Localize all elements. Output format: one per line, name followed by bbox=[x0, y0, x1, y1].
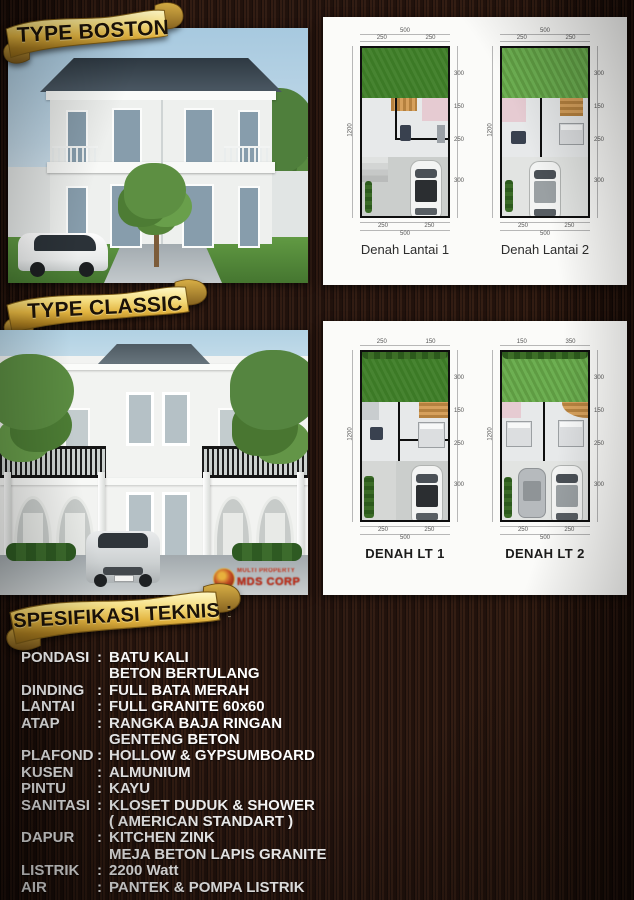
car-rear-window bbox=[415, 208, 437, 215]
spec-row: LISTRIK:2200 Watt bbox=[21, 863, 628, 879]
dim-label: 500 bbox=[540, 231, 550, 237]
floorplan-caption: DENAH LT 2 bbox=[487, 546, 603, 561]
dim-label: 250 bbox=[594, 137, 604, 143]
floorplan-denah-lt-1: 250 150 1200 300 150 250 300 250 250 500 bbox=[347, 334, 463, 561]
dim-line bbox=[500, 345, 590, 346]
car-windshield bbox=[416, 474, 438, 483]
dim-label: 500 bbox=[400, 535, 410, 541]
carport-area bbox=[362, 157, 448, 216]
dim-label: 300 bbox=[454, 178, 464, 184]
dim-label: 250 bbox=[378, 223, 388, 229]
dim-label: 300 bbox=[594, 482, 604, 488]
spec-value: ( AMERICAN STANDART ) bbox=[109, 814, 628, 830]
floorplan-caption: DENAH LT 1 bbox=[347, 546, 463, 561]
spec-value: MEJA BETON LAPIS GRANITE bbox=[109, 847, 628, 863]
car-top-view bbox=[530, 162, 560, 218]
car-roof bbox=[523, 481, 541, 501]
car-rear-window bbox=[556, 513, 578, 520]
cabinet bbox=[437, 125, 446, 143]
rooms-area bbox=[502, 402, 588, 461]
floorplan-canvas: 500 250 250 1200 300 150 250 300 250 250… bbox=[487, 30, 603, 236]
hedge bbox=[232, 543, 302, 561]
bed bbox=[559, 123, 583, 145]
spec-colon: : bbox=[97, 830, 109, 846]
spec-row: GENTENG BETON bbox=[21, 732, 628, 748]
dim-label: 250 bbox=[426, 35, 436, 41]
dim-line bbox=[360, 526, 450, 527]
dim-line bbox=[500, 526, 590, 527]
dim-label: 1200 bbox=[348, 427, 354, 440]
spec-label: LISTRIK bbox=[21, 863, 97, 879]
dim-label: 300 bbox=[454, 375, 464, 381]
dim-label: 250 bbox=[454, 137, 464, 143]
spec-value: FULL BATA MERAH bbox=[109, 683, 628, 699]
spec-colon bbox=[97, 732, 109, 748]
stairs bbox=[560, 98, 582, 116]
sofa bbox=[370, 427, 384, 440]
rooms-area bbox=[362, 402, 448, 461]
floorplan-plot bbox=[360, 46, 450, 218]
spec-label bbox=[21, 814, 97, 830]
car-roof bbox=[534, 181, 556, 203]
spec-colon: : bbox=[97, 798, 109, 814]
carport-area bbox=[362, 461, 448, 520]
dim-label: 250 bbox=[518, 527, 528, 533]
interior-wall bbox=[398, 402, 400, 461]
spec-value: KITCHEN ZINK bbox=[109, 830, 628, 846]
rooms-area bbox=[502, 98, 588, 157]
car-windshield bbox=[534, 170, 556, 179]
dim-label: 500 bbox=[400, 28, 410, 34]
dim-label: 250 bbox=[566, 35, 576, 41]
bed bbox=[418, 422, 446, 448]
technical-specifications: PONDASI:BATU KALI BETON BERTULANG DINDIN… bbox=[21, 650, 628, 896]
dim-label: 300 bbox=[454, 71, 464, 77]
tree-crown bbox=[0, 354, 74, 430]
planter bbox=[365, 181, 373, 213]
dim-label: 500 bbox=[400, 231, 410, 237]
spec-value: PANTEK & POMPA LISTRIK bbox=[109, 880, 628, 896]
car-roof bbox=[416, 485, 438, 507]
spec-row: SANITASI:KLOSET DUDUK & SHOWER bbox=[21, 798, 628, 814]
hedge bbox=[6, 543, 76, 561]
spec-label: ATAP bbox=[21, 716, 97, 732]
tree-left bbox=[0, 354, 84, 484]
bed bbox=[558, 420, 584, 447]
bathroom bbox=[502, 98, 526, 122]
dim-label: 300 bbox=[594, 178, 604, 184]
dim-label: 1200 bbox=[488, 123, 494, 136]
car-wheel bbox=[79, 262, 94, 277]
dim-label: 250 bbox=[377, 35, 387, 41]
tree-crown bbox=[124, 163, 186, 219]
sedan-car bbox=[86, 521, 160, 587]
dim-line bbox=[360, 41, 450, 42]
spec-label: SANITASI bbox=[21, 798, 97, 814]
interior-wall bbox=[540, 98, 542, 157]
car-rear-window bbox=[534, 209, 556, 216]
spec-label: DINDING bbox=[21, 683, 97, 699]
spec-colon: : bbox=[97, 781, 109, 797]
car-windshield bbox=[98, 533, 148, 548]
spec-label bbox=[21, 847, 97, 863]
watermark-line2: MDS CORP bbox=[237, 576, 300, 588]
dim-label: 350 bbox=[566, 339, 576, 345]
dim-label: 250 bbox=[424, 527, 434, 533]
lower-door bbox=[238, 186, 260, 248]
dim-label: 300 bbox=[594, 71, 604, 77]
upper-window bbox=[184, 108, 214, 164]
spec-value: FULL GRANITE 60x60 bbox=[109, 699, 628, 715]
dim-label: 300 bbox=[454, 482, 464, 488]
dim-label: 150 bbox=[454, 408, 464, 414]
garden-area bbox=[362, 352, 448, 402]
dim-label: 250 bbox=[424, 223, 434, 229]
suv-car bbox=[18, 225, 108, 277]
floorplan-caption: Denah Lantai 1 bbox=[347, 242, 463, 257]
spec-colon bbox=[97, 666, 109, 682]
dim-line bbox=[360, 34, 450, 35]
kitchen bbox=[362, 402, 379, 420]
car-top-view bbox=[552, 466, 582, 522]
spec-label: AIR bbox=[21, 880, 97, 896]
dim-label: 1200 bbox=[488, 427, 494, 440]
floorplan-plot bbox=[360, 350, 450, 522]
stair-steps bbox=[362, 157, 388, 182]
dim-label: 300 bbox=[594, 375, 604, 381]
spec-row: DAPUR:KITCHEN ZINK bbox=[21, 830, 628, 846]
fence-wall-right bbox=[268, 171, 308, 237]
dim-label: 500 bbox=[540, 535, 550, 541]
spec-row: KUSEN:ALMUNIUM bbox=[21, 765, 628, 781]
garden-area bbox=[502, 48, 588, 98]
car-roof bbox=[556, 485, 578, 507]
dim-label: 150 bbox=[594, 104, 604, 110]
floorplan-canvas: 150 350 1200 300 150 250 300 250 250 500 bbox=[487, 334, 603, 540]
car-windows bbox=[34, 235, 96, 251]
license-plate bbox=[114, 575, 134, 582]
dim-label: 250 bbox=[454, 441, 464, 447]
interior-wall bbox=[543, 402, 545, 461]
stairs bbox=[562, 402, 588, 417]
spec-colon: : bbox=[97, 748, 109, 764]
boston-floorplans-panel: 500 250 250 1200 300 150 250 300 250 250… bbox=[323, 17, 627, 285]
bathroom bbox=[422, 98, 448, 120]
dim-label: 150 bbox=[517, 339, 527, 345]
floorplan-plot bbox=[500, 350, 590, 522]
floorplan-denah-lantai-1: 500 250 250 1200 300 150 250 300 250 250… bbox=[347, 30, 463, 257]
dim-label: 250 bbox=[594, 441, 604, 447]
spec-label bbox=[21, 666, 97, 682]
spec-row: BETON BERTULANG bbox=[21, 666, 628, 682]
dim-line bbox=[500, 222, 590, 223]
dim-label: 150 bbox=[454, 104, 464, 110]
car-grille bbox=[103, 567, 143, 575]
spec-colon bbox=[97, 814, 109, 830]
spec-row: MEJA BETON LAPIS GRANITE bbox=[21, 847, 628, 863]
dim-label: 500 bbox=[540, 28, 550, 34]
spec-row: PINTU:KAYU bbox=[21, 781, 628, 797]
spec-row: PLAFOND:HOLLOW & GYPSUMBOARD bbox=[21, 748, 628, 764]
dim-line bbox=[500, 41, 590, 42]
car-wheel bbox=[30, 262, 45, 277]
garden-area bbox=[362, 48, 448, 98]
dim-label: 150 bbox=[594, 408, 604, 414]
tree-center bbox=[116, 163, 196, 267]
spec-colon: : bbox=[97, 716, 109, 732]
center-lower-door bbox=[162, 492, 190, 560]
brochure-page: TYPE BOSTON 500 250 250 1200 300 150 250… bbox=[0, 0, 634, 900]
spec-colon: : bbox=[97, 863, 109, 879]
sofa bbox=[400, 125, 411, 140]
spec-label bbox=[21, 732, 97, 748]
dim-line bbox=[500, 34, 590, 35]
floorplan-canvas: 250 150 1200 300 150 250 300 250 250 500 bbox=[347, 334, 463, 540]
watermark-line1: MULTI PROPERTY bbox=[237, 568, 295, 574]
planter bbox=[364, 476, 374, 518]
stairs bbox=[419, 402, 448, 417]
car-roof bbox=[415, 180, 437, 202]
roof-cornice bbox=[46, 91, 276, 100]
floorplan-plot bbox=[500, 46, 590, 218]
dim-label: 150 bbox=[426, 339, 436, 345]
dim-label: 250 bbox=[517, 35, 527, 41]
spec-label: DAPUR bbox=[21, 830, 97, 846]
boston-house-photo bbox=[8, 28, 308, 283]
upper-window bbox=[112, 108, 142, 164]
planter bbox=[505, 180, 513, 212]
floorplan-denah-lt-2: 150 350 1200 300 150 250 300 250 250 500 bbox=[487, 334, 603, 561]
spec-row: LANTAI:FULL GRANITE 60x60 bbox=[21, 699, 628, 715]
spec-value: BETON BERTULANG bbox=[109, 666, 628, 682]
car-below-top-view bbox=[519, 469, 545, 517]
bathroom bbox=[502, 402, 521, 417]
rooms-area bbox=[362, 98, 448, 157]
spec-value: HOLLOW & GYPSUMBOARD bbox=[109, 748, 628, 764]
spec-row: ATAP:RANGKA BAJA RINGAN bbox=[21, 716, 628, 732]
spec-label: PONDASI bbox=[21, 650, 97, 666]
tree-crown bbox=[230, 350, 308, 430]
dim-label: 250 bbox=[377, 339, 387, 345]
spec-value: KAYU bbox=[109, 781, 628, 797]
dim-label: 1200 bbox=[348, 123, 354, 136]
dim-line bbox=[360, 222, 450, 223]
classic-house-photo: MULTI PROPERTY MDS CORP bbox=[0, 330, 308, 595]
spec-label: PLAFOND bbox=[21, 748, 97, 764]
tree-right bbox=[222, 350, 308, 490]
bed bbox=[506, 421, 532, 447]
desk bbox=[511, 131, 526, 144]
spec-colon: : bbox=[97, 880, 109, 896]
spec-value: RANGKA BAJA RINGAN bbox=[109, 716, 628, 732]
spec-value: ALMUNIUM bbox=[109, 765, 628, 781]
spec-value: KLOSET DUDUK & SHOWER bbox=[109, 798, 628, 814]
bush-row bbox=[502, 352, 588, 359]
carport-area bbox=[502, 461, 588, 520]
spec-row: ( AMERICAN STANDART ) bbox=[21, 814, 628, 830]
spec-label: LANTAI bbox=[21, 699, 97, 715]
type-boston-banner: TYPE BOSTON bbox=[0, 2, 186, 66]
spec-value: GENTENG BETON bbox=[109, 732, 628, 748]
spec-row: PONDASI:BATU KALI bbox=[21, 650, 628, 666]
planter bbox=[504, 477, 513, 518]
spesifikasi-teknis-banner: SPESIFIKASI TEKNIS : bbox=[2, 583, 244, 653]
bush-row bbox=[362, 352, 448, 359]
dim-label: 250 bbox=[518, 223, 528, 229]
spec-row: AIR:PANTEK & POMPA LISTRIK bbox=[21, 880, 628, 896]
dim-line bbox=[360, 345, 450, 346]
spec-colon: : bbox=[97, 683, 109, 699]
garden-area bbox=[502, 352, 588, 402]
spec-colon: : bbox=[97, 765, 109, 781]
interior-wall bbox=[395, 98, 397, 139]
car-windshield bbox=[415, 169, 437, 178]
carport-area bbox=[502, 157, 588, 216]
dim-label: 250 bbox=[378, 527, 388, 533]
column bbox=[203, 472, 210, 562]
car-windshield bbox=[556, 474, 578, 483]
car-top-view bbox=[412, 466, 442, 522]
tree-trunk bbox=[154, 233, 159, 267]
car-rear-window bbox=[416, 513, 438, 520]
floorplan-caption: Denah Lantai 2 bbox=[487, 242, 603, 257]
spec-label: PINTU bbox=[21, 781, 97, 797]
dim-label: 250 bbox=[564, 223, 574, 229]
spec-label: KUSEN bbox=[21, 765, 97, 781]
dim-label: 250 bbox=[564, 527, 574, 533]
spec-colon: : bbox=[97, 650, 109, 666]
floorplan-denah-lantai-2: 500 250 250 1200 300 150 250 300 250 250… bbox=[487, 30, 603, 257]
spec-colon: : bbox=[97, 699, 109, 715]
floorplan-canvas: 500 250 250 1200 300 150 250 300 250 250… bbox=[347, 30, 463, 236]
center-upper-window bbox=[162, 392, 190, 446]
spec-value: 2200 Watt bbox=[109, 863, 628, 879]
car-top-view bbox=[411, 161, 441, 218]
spec-colon bbox=[97, 847, 109, 863]
spec-value: BATU KALI bbox=[109, 650, 628, 666]
spec-row: DINDING:FULL BATA MERAH bbox=[21, 683, 628, 699]
classic-floorplans-panel: 250 150 1200 300 150 250 300 250 250 500 bbox=[323, 321, 627, 595]
center-upper-window bbox=[126, 392, 154, 446]
